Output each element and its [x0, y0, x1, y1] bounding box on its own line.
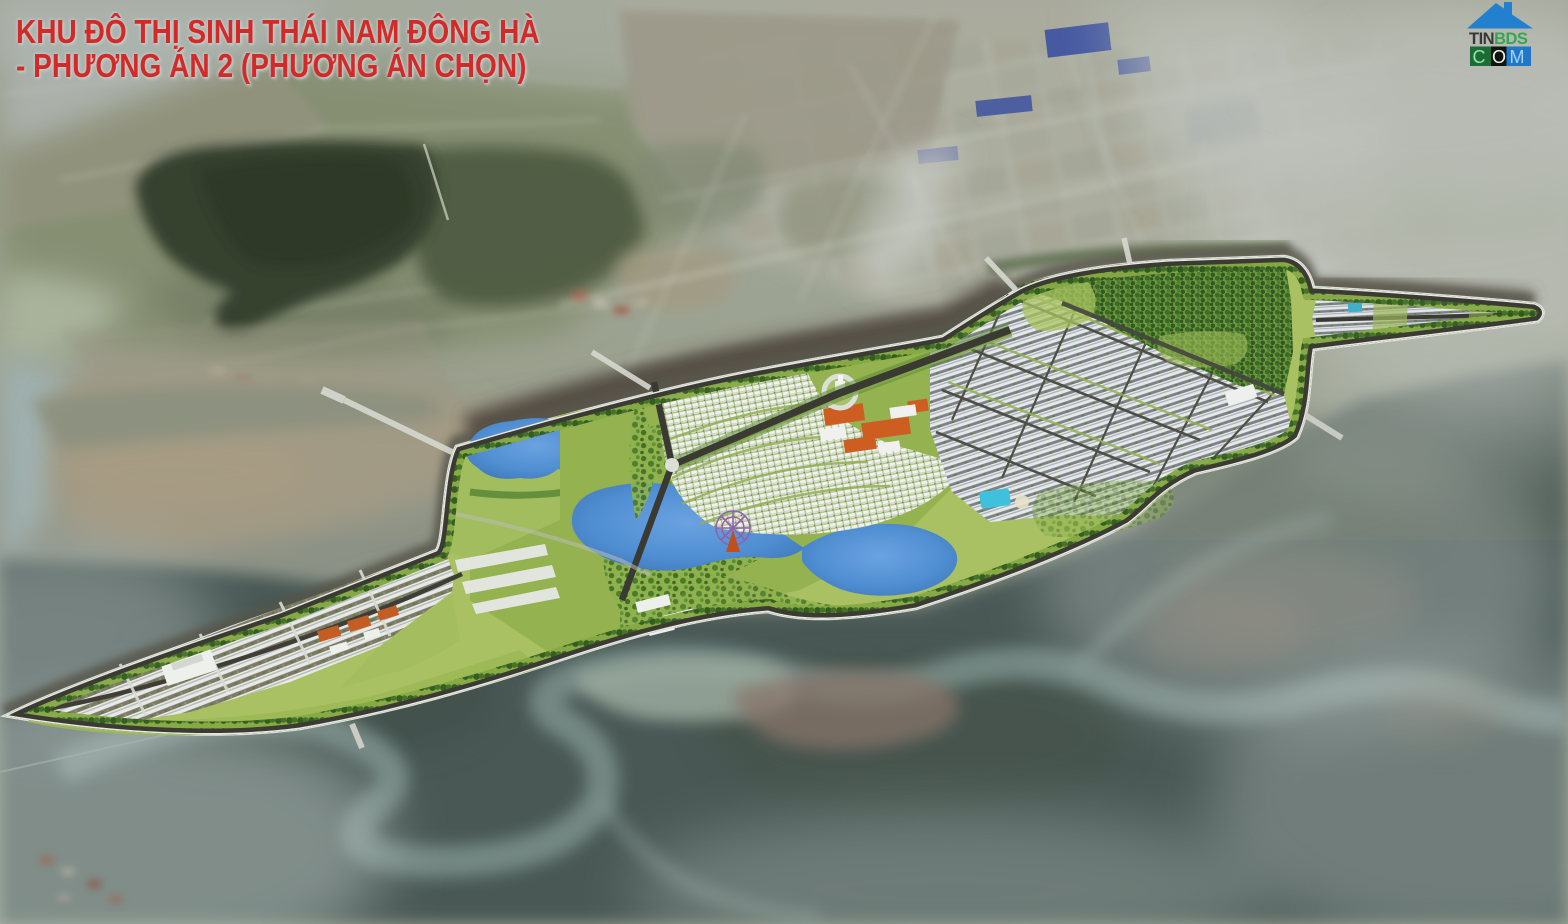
- svg-text:M: M: [1510, 47, 1525, 67]
- svg-text:TINBDS: TINBDS: [1469, 30, 1528, 48]
- svg-text:C: C: [1473, 47, 1486, 67]
- svg-text:O: O: [1492, 47, 1506, 67]
